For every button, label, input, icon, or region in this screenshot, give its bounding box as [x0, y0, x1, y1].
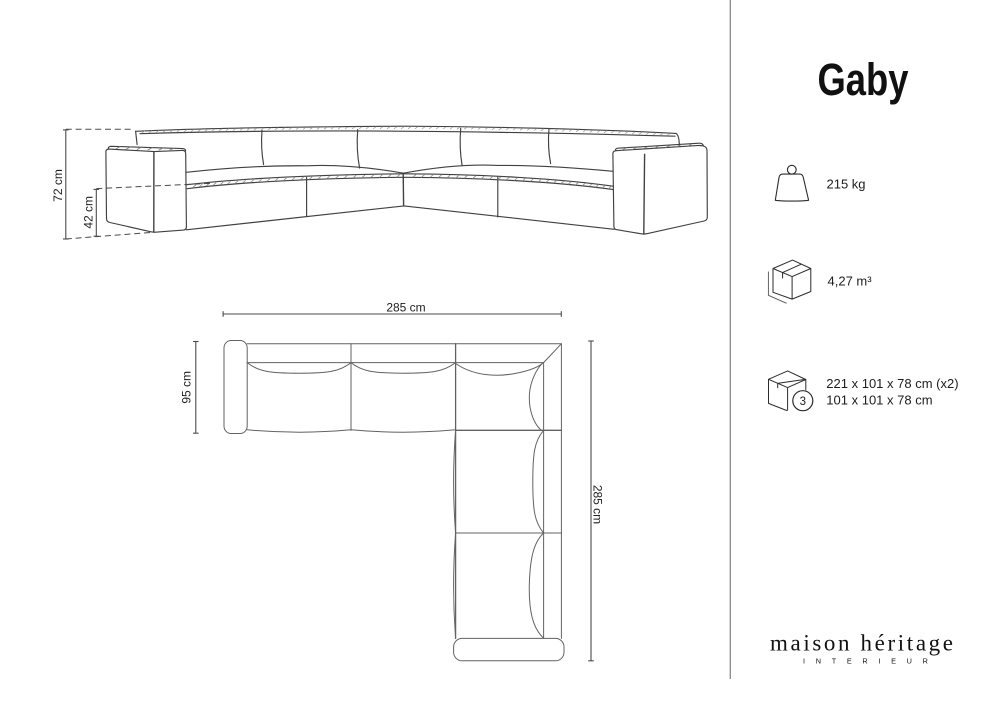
svg-text:215 kg: 215 kg	[827, 176, 866, 191]
svg-text:maison héritage: maison héritage	[770, 631, 953, 656]
svg-text:INTERIEUR: INTERIEUR	[803, 657, 939, 666]
svg-text:42 cm: 42 cm	[82, 196, 96, 229]
svg-text:72 cm: 72 cm	[51, 169, 65, 202]
svg-text:95 cm: 95 cm	[179, 371, 193, 404]
svg-text:285 cm: 285 cm	[591, 485, 605, 524]
svg-text:285 cm: 285 cm	[386, 300, 425, 314]
svg-text:3: 3	[800, 396, 806, 408]
svg-text:Gaby: Gaby	[818, 54, 909, 105]
svg-text:101 x 101 x 78 cm: 101 x 101 x 78 cm	[826, 393, 932, 408]
svg-text:4,27 m³: 4,27 m³	[828, 273, 873, 288]
svg-text:221 x 101 x 78 cm (x2): 221 x 101 x 78 cm (x2)	[826, 376, 958, 391]
